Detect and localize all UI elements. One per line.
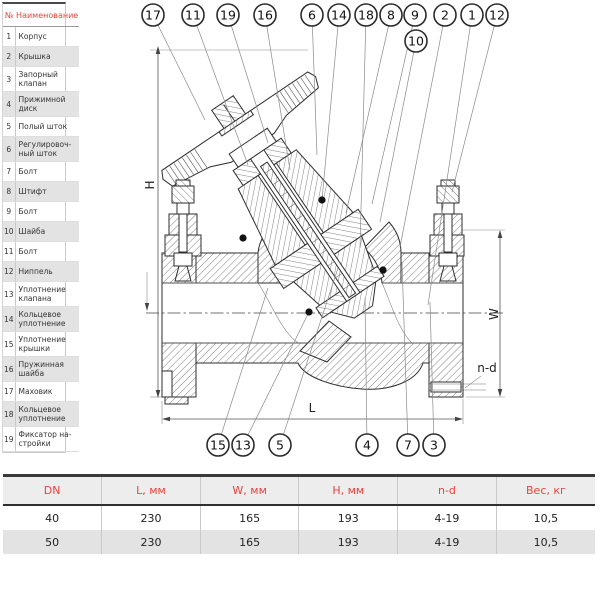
parts-list-row: 15Уплотнение крышки (3, 332, 79, 357)
callout-leader-12 (452, 26, 494, 192)
dim-label-l: L (309, 401, 316, 415)
dim-label-nd: n-d (477, 361, 497, 375)
part-name: Запорный клапан (15, 67, 79, 92)
part-name: Корпус (15, 27, 79, 47)
valve-technical-drawing: H W L n-d (0, 0, 600, 470)
part-name: Фиксатор на- стройки (15, 427, 79, 452)
parts-list-header: № Наименование (3, 4, 79, 27)
callout-number-13: 13 (235, 437, 251, 452)
part-name: Ниппель (15, 262, 79, 282)
dims-cell: 4-19 (398, 505, 497, 530)
parts-list-row: 14Кольцевое уплотнение (3, 307, 79, 332)
part-number: 3 (3, 67, 15, 92)
callout-number-12: 12 (489, 7, 505, 22)
dim-label-w: W (487, 308, 501, 320)
callout-number-19: 19 (220, 7, 236, 22)
part-number: 12 (3, 262, 15, 282)
part-name: Болт (15, 202, 79, 222)
callout-number-9: 9 (411, 7, 419, 22)
part-name: Регулировоч- ный шток (15, 137, 79, 162)
part-number: 4 (3, 92, 15, 117)
part-name: Кольцевое уплотнение (15, 307, 79, 332)
part-name: Полый шток (15, 117, 79, 137)
callout-number-4: 4 (363, 437, 371, 452)
dims-cell: 165 (200, 505, 299, 530)
callout-leader-9 (372, 26, 413, 204)
dims-cell: 230 (102, 505, 201, 530)
parts-header-name: Наименование (15, 4, 79, 27)
parts-list-row: 8Штифт (3, 182, 79, 202)
callout-number-6: 6 (308, 7, 316, 22)
parts-list-row: 18Кольцевое уплотнение (3, 402, 79, 427)
part-name: Уплотнение крышки (15, 332, 79, 357)
parts-list-row: 2Крышка (3, 47, 79, 67)
part-number: 6 (3, 137, 15, 162)
dims-table-row: 402301651934-1910,5 (3, 505, 595, 530)
callout-number-15: 15 (210, 437, 226, 452)
callout-number-16: 16 (257, 7, 273, 22)
callout-leader-17 (158, 25, 205, 120)
parts-list-row: 6Регулировоч- ный шток (3, 137, 79, 162)
part-number: 10 (3, 222, 15, 242)
bolt-hole (431, 382, 461, 392)
callout-number-17: 17 (145, 7, 161, 22)
part-name: Кольцевое уплотнение (15, 402, 79, 427)
callout-number-11: 11 (185, 7, 201, 22)
dims-cell: 10,5 (496, 505, 595, 530)
callout-number-10: 10 (408, 33, 424, 48)
part-number: 11 (3, 242, 15, 262)
part-name: Прижимной диск (15, 92, 79, 117)
callout-number-5: 5 (276, 437, 284, 452)
part-name: Болт (15, 242, 79, 262)
dims-cell: 50 (3, 530, 102, 554)
dim-label-h: H (143, 180, 157, 189)
part-name: Маховик (15, 382, 79, 402)
seal-cross-section (318, 196, 325, 203)
parts-list-row: 1Корпус (3, 27, 79, 47)
part-number: 19 (3, 427, 15, 452)
callout-number-2: 2 (441, 7, 449, 22)
callout-number-18: 18 (358, 7, 374, 22)
part-number: 1 (3, 27, 15, 47)
parts-list-row: 5Полый шток (3, 117, 79, 137)
seal-cross-section (379, 266, 386, 273)
parts-list-table: № Наименование 1Корпус2Крышка3Запорный к… (2, 2, 66, 453)
part-number: 2 (3, 47, 15, 67)
parts-list-row: 11Болт (3, 242, 79, 262)
parts-list-row: 13Уплотнение клапана (3, 282, 79, 307)
parts-list-row: 10Шайба (3, 222, 79, 242)
seal-cross-section (239, 234, 246, 241)
part-name: Болт (15, 162, 79, 182)
part-name: Штифт (15, 182, 79, 202)
part-name: Шайба (15, 222, 79, 242)
part-name: Пружинная шайба (15, 357, 79, 382)
dims-column-header: n-d (398, 477, 497, 505)
parts-list-row: 4Прижимной диск (3, 92, 79, 117)
part-number: 15 (3, 332, 15, 357)
dims-cell: 230 (102, 530, 201, 554)
part-number: 16 (3, 357, 15, 382)
dims-cell: 10,5 (496, 530, 595, 554)
dimensions-table-header: DNL, ммW, ммH, ммn-dВес, кг (3, 477, 595, 505)
callout-leader-13 (248, 314, 308, 435)
callout-leader-14 (322, 26, 338, 200)
callout-number-8: 8 (387, 7, 395, 22)
part-name: Крышка (15, 47, 79, 67)
part-number: 14 (3, 307, 15, 332)
part-number: 13 (3, 282, 15, 307)
part-number: 17 (3, 382, 15, 402)
parts-list-row: 12Ниппель (3, 262, 79, 282)
dims-cell: 193 (299, 505, 398, 530)
dimensions-table: DNL, ммW, ммH, ммn-dВес, кг 402301651934… (3, 474, 595, 554)
parts-list-row: 17Маховик (3, 382, 79, 402)
part-number: 7 (3, 162, 15, 182)
part-name: Уплотнение клапана (15, 282, 79, 307)
callout-number-1: 1 (468, 7, 476, 22)
parts-list-row: 9Болт (3, 202, 79, 222)
dims-table-row: 502301651934-1910,5 (3, 530, 595, 554)
dims-column-header: L, мм (102, 477, 201, 505)
parts-header-num: № (3, 4, 15, 27)
dims-cell: 40 (3, 505, 102, 530)
part-number: 8 (3, 182, 15, 202)
dims-column-header: H, мм (299, 477, 398, 505)
parts-list-row: 3Запорный клапан (3, 67, 79, 92)
callout-leader-10 (380, 52, 414, 222)
callout-leader-18 (360, 26, 366, 248)
parts-list-row: 16Пружинная шайба (3, 357, 79, 382)
parts-list-row: 7Болт (3, 162, 79, 182)
seal-cross-section (305, 308, 312, 315)
dims-cell: 165 (200, 530, 299, 554)
parts-list-row: 19Фиксатор на- стройки (3, 427, 79, 452)
part-number: 5 (3, 117, 15, 137)
callout-number-3: 3 (430, 437, 438, 452)
callout-number-7: 7 (404, 437, 412, 452)
dims-cell: 193 (299, 530, 398, 554)
dims-column-header: W, мм (200, 477, 299, 505)
part-number: 9 (3, 202, 15, 222)
dims-column-header: Вес, кг (496, 477, 595, 505)
callout-number-14: 14 (331, 7, 347, 22)
callout-leader-8 (346, 26, 389, 213)
dims-column-header: DN (3, 477, 102, 505)
dims-cell: 4-19 (398, 530, 497, 554)
part-number: 18 (3, 402, 15, 427)
